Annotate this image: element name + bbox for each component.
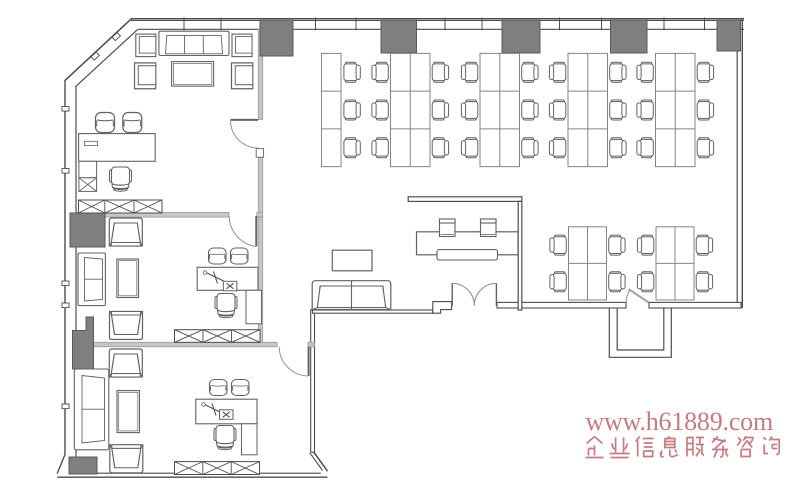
- svg-text:www.h61889.com: www.h61889.com: [585, 407, 773, 436]
